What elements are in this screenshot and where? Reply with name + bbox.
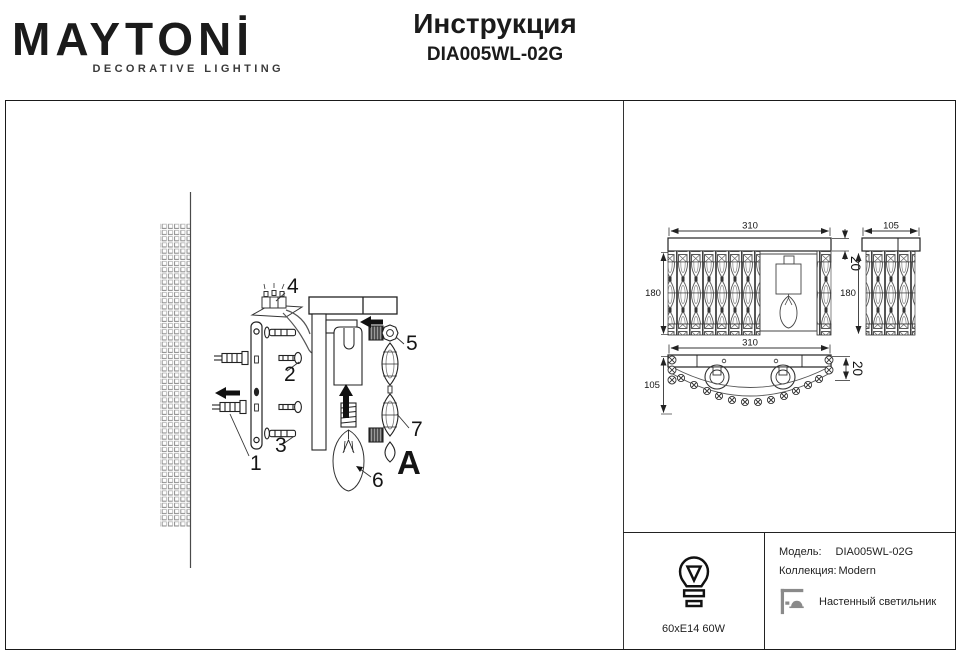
part-label-4: 4 bbox=[287, 275, 299, 298]
brand-logo: MAYTONİ DECORATIVE LIGHTING bbox=[12, 16, 284, 75]
type-row: Настенный светильник bbox=[779, 587, 955, 616]
model-number: DIA005WL-02G bbox=[330, 44, 660, 66]
front-view: 310 20 180 bbox=[645, 221, 863, 336]
bulb-spec-cell: 60xE14 60W bbox=[623, 533, 765, 649]
brand-name: MAYTONİ bbox=[12, 16, 284, 62]
mounting-bracket bbox=[251, 322, 262, 449]
title-block: Инструкция DIA005WL-02G bbox=[330, 8, 660, 66]
part-label-6: 6 bbox=[372, 469, 384, 492]
screw-top bbox=[265, 327, 296, 338]
detail-label-a: A bbox=[397, 444, 421, 481]
dim-side-width: 105 bbox=[883, 221, 899, 232]
collection-value: Modern bbox=[839, 565, 876, 577]
instruction-sheet: MAYTONİ DECORATIVE LIGHTING Инструкция D… bbox=[0, 0, 960, 656]
side-view: 105 180 bbox=[840, 221, 920, 336]
wall-lamp-icon bbox=[779, 587, 806, 616]
part-label-1: 1 bbox=[250, 452, 262, 475]
bulb-icon bbox=[671, 548, 717, 618]
crystal-chain bbox=[369, 325, 398, 462]
part-label-3: 3 bbox=[275, 434, 287, 457]
dim-front-depth: 20 bbox=[848, 256, 863, 271]
bottom-view: 310 bbox=[644, 338, 865, 415]
dimension-drawings: 310 20 180 bbox=[630, 210, 956, 440]
collection-row: Коллекция: Modern bbox=[779, 565, 955, 577]
model-label: Модель: bbox=[779, 546, 822, 558]
model-value: DIA005WL-02G bbox=[836, 546, 914, 558]
dim-side-height: 180 bbox=[840, 288, 856, 299]
wall-anchor-bottom bbox=[212, 401, 246, 414]
page-title: Инструкция bbox=[330, 8, 660, 40]
dim-front-height: 180 bbox=[645, 288, 661, 299]
dim-front-width: 310 bbox=[742, 221, 758, 232]
part-label-5: 5 bbox=[406, 332, 418, 355]
dim-bottom-width: 310 bbox=[742, 338, 758, 349]
part-label-2: 2 bbox=[284, 363, 296, 386]
screw-middle-top bbox=[279, 352, 301, 363]
model-row: Модель: DIA005WL-02G bbox=[779, 546, 955, 558]
info-panel: 60xE14 60W Модель: DIA005WL-02G Коллекци… bbox=[623, 532, 955, 649]
assembly-diagram: 1 2 3 4 5 6 7 A bbox=[5, 100, 622, 649]
dim-bottom-depth: 105 bbox=[644, 380, 660, 391]
wall-texture bbox=[160, 223, 190, 527]
dim-bottom-height: 20 bbox=[850, 361, 865, 376]
screw-middle-bottom bbox=[279, 401, 301, 412]
collection-label: Коллекция: bbox=[779, 565, 837, 577]
part-label-7: 7 bbox=[411, 418, 423, 441]
arrow-left-bracket bbox=[215, 387, 240, 399]
product-info-cell: Модель: DIA005WL-02G Коллекция: Modern Н… bbox=[765, 533, 955, 649]
type-label: Настенный светильник bbox=[819, 596, 936, 608]
wall-anchor-top bbox=[214, 352, 248, 365]
bulb-spec-text: 60xE14 60W bbox=[662, 623, 725, 635]
